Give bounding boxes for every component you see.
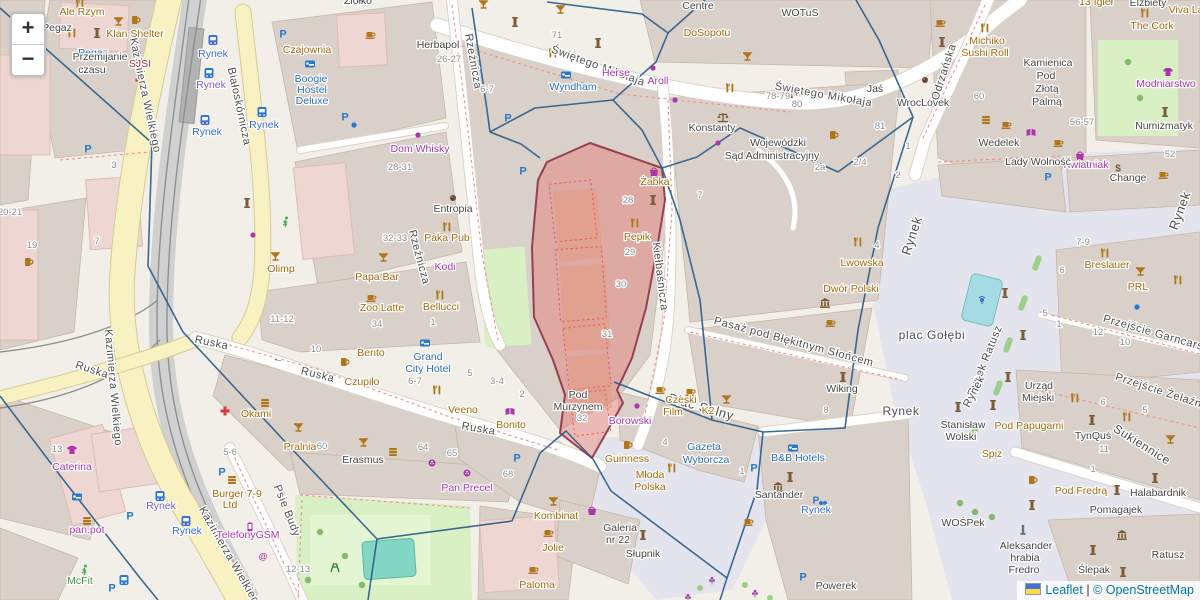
housenumber-label: 11-12 xyxy=(270,314,294,325)
poi-label: Jolie xyxy=(542,542,564,554)
poi-label: Zoo Latte xyxy=(360,302,405,314)
housenumber-label: 80 xyxy=(792,99,803,110)
poi-label: Powerek xyxy=(816,580,858,592)
poi-label: Pod Papugami xyxy=(995,420,1064,432)
ff-icon xyxy=(228,476,236,484)
housenumber-label: 13 xyxy=(52,444,63,455)
poi-label: Ale Rzym xyxy=(60,6,105,18)
poi-label: Wyndham xyxy=(549,81,596,93)
cafe-icon xyxy=(826,320,836,327)
poi-label: Galeria xyxy=(603,522,637,534)
housenumber-label: 5 xyxy=(1042,308,1047,319)
book-icon xyxy=(1027,129,1036,136)
poi-label: Wyborcza xyxy=(683,454,730,466)
poi-label: Ziołko xyxy=(344,0,372,7)
housenumber-label: 3-4 xyxy=(490,376,504,387)
housenumber-label: 6 xyxy=(1100,397,1105,408)
poi-label: Czeski xyxy=(665,394,697,406)
transit-stop-label: Rynek xyxy=(146,500,177,512)
poi-label: Centre xyxy=(682,0,714,12)
at-icon: @ xyxy=(259,552,268,562)
bus-icon xyxy=(258,107,267,117)
housenumber-label: 68 xyxy=(503,469,514,480)
housenumber-label: 6-7 xyxy=(480,84,494,95)
svg-text:P: P xyxy=(126,511,133,523)
housenumber-label: 71 xyxy=(552,30,563,41)
poi-label: Palmą xyxy=(1032,96,1062,108)
poi-label: Veeno xyxy=(448,404,478,416)
poi-label: The Cork xyxy=(1130,20,1174,32)
housenumber-label: 34 xyxy=(372,319,383,330)
housenumber-label: 10 xyxy=(1120,337,1131,348)
housenumber-label: 20-21 xyxy=(0,207,22,218)
poi-label: Wiking xyxy=(826,383,858,395)
poi-label: czasu xyxy=(78,64,106,76)
housenumber-label: 2 xyxy=(895,170,900,181)
tree-icon xyxy=(1137,95,1143,101)
poi-label: Pegaz xyxy=(42,22,72,34)
poi-label: Ślepak xyxy=(1078,563,1111,576)
poi-label: SJSI xyxy=(129,58,151,70)
svg-text:P: P xyxy=(84,144,91,156)
street-label: plac Gołębi xyxy=(899,328,966,342)
poi-label: Borowski xyxy=(609,415,652,427)
poi-label: Pod xyxy=(1037,70,1056,82)
cafe-icon xyxy=(529,567,539,574)
housenumber-label: 5-6 xyxy=(223,447,237,458)
housenumber-label: 31 xyxy=(602,329,613,340)
poi-label: Numizmatyk xyxy=(1135,120,1194,132)
transit-stop-label: Rynek xyxy=(801,504,832,516)
housenumber-label: 60 xyxy=(317,441,328,452)
hotel-icon xyxy=(561,72,571,79)
housenumber-label: 28 xyxy=(623,195,634,206)
parking-icon: P xyxy=(84,144,91,156)
building-block xyxy=(758,412,912,600)
housenumber-label: 4 xyxy=(662,437,667,448)
poi-label: Halabardnik xyxy=(1130,487,1187,499)
poi-label: Bellucci xyxy=(423,301,459,313)
poi-label: Pod xyxy=(569,389,588,401)
poi-label: Viva La xyxy=(1169,4,1200,16)
building-pink xyxy=(337,13,388,67)
poi-label: Sushi Roll xyxy=(961,47,1008,59)
transit-stop-label: Rynek xyxy=(249,119,280,131)
poi-label: Papa Bar xyxy=(355,271,399,283)
parking-icon: P xyxy=(513,453,520,465)
building-block xyxy=(1056,232,1200,386)
bus-icon xyxy=(205,68,214,78)
parking-icon: P xyxy=(279,29,286,41)
poi-label: Pod Fredrą xyxy=(1055,485,1108,497)
poi-label: WOŚPek xyxy=(941,516,985,529)
poi-label: Miejski xyxy=(1022,392,1054,404)
cafe-icon xyxy=(936,20,946,27)
poi-label: Pomagajek xyxy=(1090,504,1143,516)
tree-icon xyxy=(1125,59,1131,65)
poi-label: Entropia xyxy=(433,203,472,215)
zoom-in-button[interactable]: + xyxy=(12,14,44,45)
housenumber-label: 11 xyxy=(1099,444,1109,455)
svg-text:P: P xyxy=(504,113,511,125)
zoom-out-button[interactable]: − xyxy=(12,45,44,75)
housenumber-label: 28-31 xyxy=(388,162,412,173)
parking-icon: P xyxy=(218,467,225,479)
poi-label: Czajownia xyxy=(283,44,332,56)
poi-label: Paloma xyxy=(519,579,555,591)
poi-label: City Hotel xyxy=(405,363,451,375)
poi-label: Jaś xyxy=(867,83,883,95)
poi-label: Herbapol xyxy=(417,39,460,51)
housenumber-label: 6-7 xyxy=(408,376,422,387)
poi-label: Bento xyxy=(357,347,385,359)
street-label: Rynek xyxy=(882,404,919,418)
tree-icon xyxy=(317,529,323,535)
svg-text:@: @ xyxy=(259,552,268,562)
housenumber-label: 7 xyxy=(94,236,99,247)
poi-label: Film xyxy=(663,406,683,418)
housenumber-label: 60 xyxy=(974,91,985,102)
poi-label: McFit xyxy=(67,575,93,587)
svg-text:P: P xyxy=(279,29,286,41)
poi-label: Aleksander xyxy=(1000,540,1053,552)
cafe-icon xyxy=(544,530,554,537)
svg-text:P: P xyxy=(519,166,526,178)
poi-label: Erasmus xyxy=(342,454,383,466)
poi-label: Złotą xyxy=(1035,83,1059,95)
housenumber-label: 1 xyxy=(1056,319,1061,330)
parking-icon: P xyxy=(341,112,348,124)
poi-label: Wolski xyxy=(946,431,977,443)
poi-label: hrabia xyxy=(1010,552,1039,564)
parking-icon: P xyxy=(1044,172,1051,184)
housenumber-label: 3 xyxy=(111,160,116,171)
poi-label: Urząd xyxy=(1025,380,1053,392)
dotp-icon xyxy=(250,232,255,237)
tree-icon xyxy=(342,553,348,559)
poi-label: Ltd xyxy=(223,499,238,511)
map-attribution: Leaflet | © OpenStreetMap xyxy=(1017,581,1200,600)
tree-icon xyxy=(359,582,365,588)
poi-label: Dom Whisky xyxy=(391,143,451,155)
bakery-icon xyxy=(429,460,436,467)
poi-label: Bonito xyxy=(496,419,526,431)
poi-label: Murzynem xyxy=(553,401,602,413)
ff-icon xyxy=(261,399,269,407)
tree-icon xyxy=(957,500,963,506)
zoom-control: + − xyxy=(10,12,46,77)
poi-label: Lady Wolność xyxy=(1005,156,1071,168)
housenumber-label: 8 xyxy=(823,405,828,416)
poi-label: Konstanty xyxy=(689,122,736,134)
hotel-icon xyxy=(72,494,82,501)
ff-icon xyxy=(389,448,397,456)
art-icon xyxy=(922,77,928,83)
poi-label: Młoda xyxy=(636,469,665,481)
housenumber-label: 29 xyxy=(625,247,636,258)
housenumber-label: 6 xyxy=(1059,265,1064,276)
transit-stop-label: Rynek xyxy=(192,126,223,138)
svg-text:P: P xyxy=(218,467,225,479)
cafe-icon xyxy=(1159,172,1169,179)
poi-label: Sąd Administracyjny xyxy=(725,150,820,162)
svg-text:P: P xyxy=(1044,172,1051,184)
tree-icon xyxy=(305,577,311,583)
poi-label: Spiz xyxy=(982,448,1002,460)
housenumber-label: 7-9 xyxy=(1076,237,1090,248)
poi-label: Kombinat xyxy=(534,510,578,522)
poi-label: WOTuS xyxy=(782,7,819,19)
svg-text:P: P xyxy=(799,572,806,584)
poi-label: Przemijanie xyxy=(73,51,128,63)
cafe-icon xyxy=(367,295,377,302)
poi-label: Guinness xyxy=(605,453,649,465)
poi-label: Wojewódzki xyxy=(750,137,806,149)
housenumber-label: 52 xyxy=(1165,149,1176,160)
poi-label: Żabka xyxy=(640,175,669,188)
poi-label: Fredro xyxy=(1009,564,1040,576)
hotel-icon xyxy=(305,61,315,68)
poi-label: TelefonyGSM xyxy=(216,529,279,541)
dotp-icon xyxy=(672,97,677,102)
poi-label: Gazeta xyxy=(687,441,721,453)
poi-label: Okami xyxy=(241,408,271,420)
poi-label: Caterina xyxy=(52,461,92,473)
housenumber-label: 10 xyxy=(311,344,322,355)
poi-label: Olimp xyxy=(267,263,295,275)
poi-label: nr 22 xyxy=(606,534,630,546)
poi-label: 13 Igieł xyxy=(1079,0,1114,8)
housenumber-label: 5 xyxy=(467,368,472,379)
cafe-icon xyxy=(656,387,666,394)
transit-stop-label: Rynek xyxy=(196,79,227,91)
poi-label: Deluxe xyxy=(296,95,329,107)
housenumber-label: 2/4 xyxy=(853,157,866,168)
hotel-icon xyxy=(420,340,430,347)
building-pink xyxy=(0,210,38,340)
poi-label: pan.pot xyxy=(69,524,104,536)
poi-label: B&B Hotels xyxy=(771,452,825,464)
housenumber-label: 81 xyxy=(875,121,886,132)
dotb-icon xyxy=(351,122,356,127)
dotp-icon xyxy=(634,403,639,408)
housenumber-label: 2 xyxy=(519,389,524,400)
housenumber-label: 1 xyxy=(739,466,744,477)
dotg-icon xyxy=(697,585,703,591)
book-icon xyxy=(506,408,515,415)
poi-label: Stanisław xyxy=(941,419,986,431)
poi-label: Michiko xyxy=(969,35,1005,47)
poi-label: Lwowska xyxy=(840,257,883,269)
housenumber-label: 12 xyxy=(1093,327,1104,338)
housenumber-label: 1 xyxy=(905,141,910,152)
tree-icon xyxy=(972,509,978,515)
poi-label: Wedelek xyxy=(979,137,1020,149)
parking-icon: P xyxy=(126,511,133,523)
housenumber-label: 1 xyxy=(430,317,435,328)
cafe-icon xyxy=(366,32,376,39)
housenumber-label: 4 xyxy=(874,240,879,251)
tram-icon xyxy=(201,115,210,125)
poi-label: Aroll xyxy=(647,75,668,87)
poi-label: TynQuś xyxy=(1075,430,1111,442)
svg-text:P: P xyxy=(513,453,520,465)
leaflet-link[interactable]: Leaflet xyxy=(1045,583,1083,597)
bus-icon xyxy=(120,575,129,585)
svg-text:P: P xyxy=(341,112,348,124)
parking-icon: P xyxy=(519,166,526,178)
housenumber-label: 30 xyxy=(616,279,627,290)
poi-label: WrocLovek xyxy=(897,97,950,109)
osm-link[interactable]: © OpenStreetMap xyxy=(1093,583,1194,597)
poi-label: Change xyxy=(1110,172,1147,184)
poi-label: Dwór Polski xyxy=(823,283,878,295)
map-canvas[interactable]: PPPPPPPPPPPPP$@Świętego MikołajaŚwiętego… xyxy=(0,0,1200,600)
dotb-icon xyxy=(1134,304,1139,309)
poi-label: Czupiło xyxy=(344,376,379,388)
poi-label: Pepik xyxy=(624,231,651,243)
dotp-icon xyxy=(715,140,720,145)
transit-stop-label: Rynek xyxy=(172,525,203,537)
poi-label: Słupnik xyxy=(626,548,661,560)
poi-label: K2 xyxy=(702,405,715,417)
dotp-icon xyxy=(415,132,420,137)
cafe-icon xyxy=(1054,140,1064,147)
poi-label: Kamienica xyxy=(1023,57,1072,69)
housenumber-label: 19 xyxy=(27,240,38,251)
housenumber-label: 65 xyxy=(447,448,458,459)
housenumber-label: 7 xyxy=(697,190,702,201)
poi-label: Grand xyxy=(413,351,442,363)
housenumber-label: 5 xyxy=(1142,405,1147,416)
housenumber-label: 2a xyxy=(815,162,826,173)
housenumber-label: 1 xyxy=(1090,464,1095,475)
parking-icon: P xyxy=(799,572,806,584)
housenumber-label: 26-27 xyxy=(437,54,461,65)
poi-label: Modniarstwo xyxy=(1136,78,1196,90)
housenumber-label: 12-13 xyxy=(286,564,310,575)
ukraine-flag-icon xyxy=(1025,583,1041,595)
housenumber-label: 32-33 xyxy=(383,233,407,244)
housenumber-label: 64 xyxy=(418,442,429,453)
dotp-icon xyxy=(650,65,655,70)
poi-label: Santander xyxy=(755,489,804,501)
poi-label: Paka Pub xyxy=(424,232,470,244)
housenumber-label: 56-57 xyxy=(1070,117,1094,128)
poi-label: PRL xyxy=(1128,281,1149,293)
tree-icon xyxy=(989,514,995,520)
housenumber-label: 32 xyxy=(577,413,588,424)
pool-area xyxy=(362,538,417,580)
building-pink xyxy=(293,163,354,260)
poi-label: Elżbiety xyxy=(1130,0,1168,9)
poi-label: Kodi xyxy=(434,261,455,273)
svg-text:P: P xyxy=(750,463,757,475)
bakery-icon xyxy=(464,470,471,477)
poi-label: Klan Shelter xyxy=(106,28,164,40)
tram-icon xyxy=(209,35,218,45)
cafe-icon xyxy=(1002,122,1012,129)
parking-icon: P xyxy=(108,583,115,595)
poi-label: Pralnia xyxy=(284,441,317,453)
poi-label: Breslauer xyxy=(1085,259,1130,271)
svg-text:P: P xyxy=(108,583,115,595)
parking-icon: P xyxy=(504,113,511,125)
parking-icon: P xyxy=(750,463,757,475)
poi-label: Herse xyxy=(602,67,630,79)
housenumber-label: 78-79 xyxy=(766,91,790,102)
ff-icon xyxy=(982,116,990,124)
transit-stop-label: Rynek xyxy=(198,48,229,60)
poi-label: Polska xyxy=(634,481,666,493)
poi-label: DoSopotu xyxy=(684,27,731,39)
map-viewport[interactable]: PPPPPPPPPPPPP$@Świętego MikołajaŚwiętego… xyxy=(0,0,1200,600)
dotg-icon xyxy=(742,582,748,588)
poi-label: Ratusz xyxy=(1152,549,1185,561)
poi-label: Pan Precel xyxy=(441,482,492,494)
hotel-icon xyxy=(788,445,798,452)
art-icon xyxy=(450,195,456,201)
cafe-icon xyxy=(744,519,754,526)
attribution-separator: | xyxy=(1083,583,1093,597)
